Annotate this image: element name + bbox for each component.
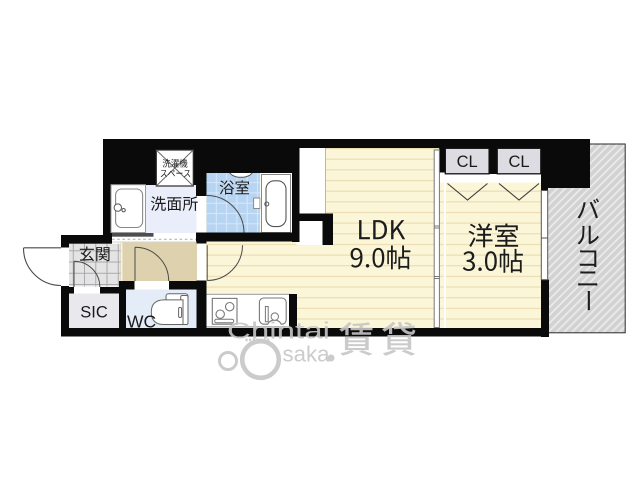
svg-text:saka: saka [283, 342, 331, 367]
svg-text:WC: WC [127, 311, 156, 331]
svg-text:CL: CL [457, 153, 478, 171]
svg-text:SIC: SIC [80, 303, 108, 321]
svg-text:Chintai: Chintai [227, 318, 330, 344]
svg-text:CL: CL [508, 153, 529, 171]
